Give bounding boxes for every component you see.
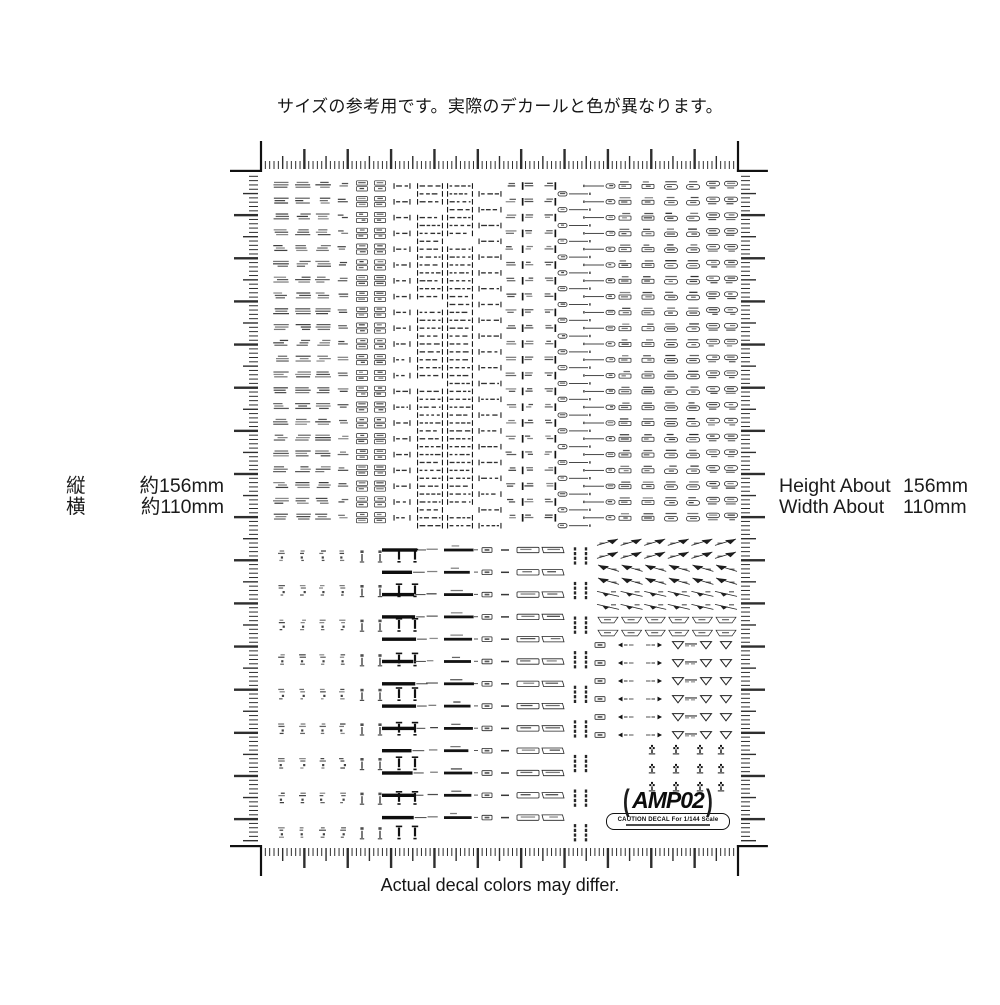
- height-value-en: 156mm: [903, 476, 968, 497]
- width-label-en: Width About: [779, 497, 903, 518]
- size-labels-en: Height About 156mm Width About 110mm: [779, 476, 969, 517]
- height-label-en: Height About: [779, 476, 903, 497]
- size-labels-ja: 縦 約156mm 横 約110mm: [66, 476, 224, 517]
- width-value-ja: 約110mm: [141, 497, 224, 518]
- logo-bracket-right: ): [706, 785, 713, 816]
- logo-fineprint-bar: [626, 824, 710, 827]
- width-row-ja: 横 約110mm: [66, 497, 224, 518]
- top-caption: サイズの参考用です。実際のデカールと色が異なります。: [0, 92, 1000, 117]
- page-root: { "captions": { "top": "サイズの参考用です。実際のデカー…: [0, 0, 1000, 1000]
- height-label-ja: 縦: [66, 476, 86, 497]
- width-label-ja: 横: [66, 497, 86, 518]
- logo-name: AMP02: [632, 789, 704, 812]
- height-value-ja: 約156mm: [139, 476, 224, 497]
- logo-caption: CAUTION DECAL For 1/144 Scale: [618, 817, 719, 823]
- height-row-en: Height About 156mm: [779, 476, 969, 497]
- width-value-en: 110mm: [903, 497, 967, 518]
- logo-bracket-left: (: [623, 785, 630, 816]
- logo-wordmark: ( AMP02 ): [606, 788, 730, 812]
- amp02-logo: ( AMP02 ) CAUTION DECAL For 1/144 Scale: [606, 788, 730, 830]
- bottom-caption: Actual decal colors may differ.: [0, 875, 1000, 896]
- height-row-ja: 縦 約156mm: [66, 476, 224, 497]
- width-row-en: Width About 110mm: [779, 497, 969, 518]
